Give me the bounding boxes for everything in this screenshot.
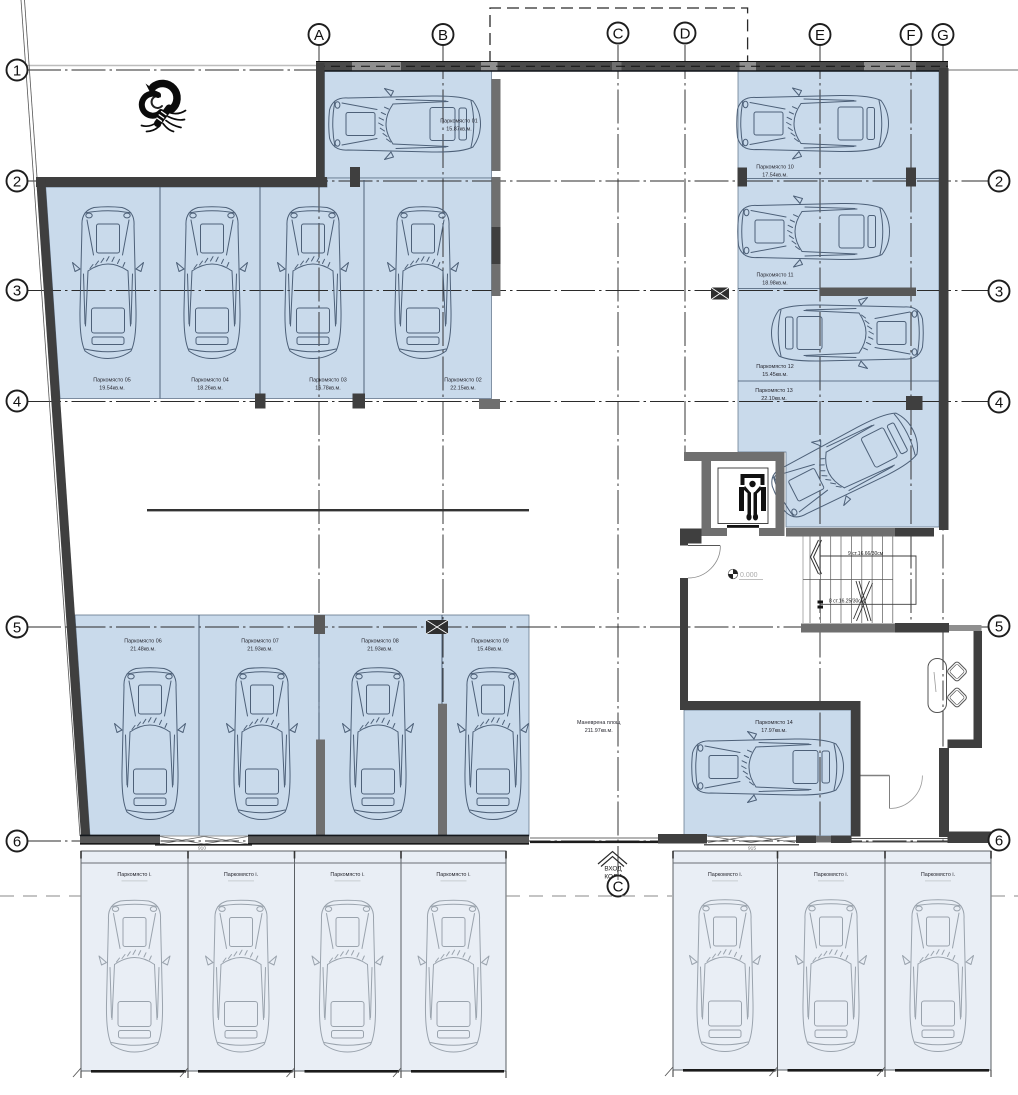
svg-text:G: G: [937, 27, 949, 44]
svg-text:915: 915: [748, 846, 756, 852]
svg-text:3: 3: [13, 282, 21, 299]
svg-text:Паркомясто 10: Паркомясто 10: [756, 165, 794, 171]
svg-text:5: 5: [995, 618, 1003, 635]
svg-text:21.48кв.м.: 21.48кв.м.: [130, 647, 155, 653]
svg-text:Маневрена площ: Маневрена площ: [577, 720, 621, 726]
svg-text:Паркомясто i.: Паркомясто i.: [814, 872, 848, 878]
svg-text:D: D: [680, 25, 691, 42]
svg-text:C: C: [613, 25, 624, 42]
svg-text:16.78кв.м.: 16.78кв.м.: [315, 386, 340, 392]
svg-text:Паркомясто 09: Паркомясто 09: [471, 639, 509, 645]
svg-text:2: 2: [995, 173, 1003, 190]
svg-text:21.93кв.м.: 21.93кв.м.: [247, 647, 272, 653]
svg-text:9 ст.16.66/30см: 9 ст.16.66/30см: [848, 551, 884, 557]
svg-text:1: 1: [13, 62, 21, 79]
svg-text:6: 6: [13, 833, 21, 850]
svg-text:17.54кв.м.: 17.54кв.м.: [762, 173, 787, 179]
svg-text:2: 2: [13, 173, 21, 190]
svg-text:Паркомясто 08: Паркомясто 08: [361, 639, 399, 645]
svg-text:A: A: [314, 27, 324, 44]
svg-text:Паркомясто i.: Паркомясто i.: [436, 872, 470, 878]
svg-text:Паркомясто 01: Паркомясто 01: [440, 119, 478, 125]
svg-text:ВХОД: ВХОД: [604, 866, 622, 873]
svg-text:3: 3: [995, 283, 1003, 300]
svg-text:5: 5: [13, 619, 21, 636]
svg-text:Паркомясто i.: Паркомясто i.: [708, 872, 742, 878]
svg-text:4: 4: [995, 394, 1003, 411]
svg-text:22.15кв.м.: 22.15кв.м.: [450, 386, 475, 392]
svg-text:4: 4: [13, 393, 21, 410]
svg-text:C: C: [613, 878, 624, 895]
svg-text:15.87кв.м.: 15.87кв.м.: [446, 127, 471, 133]
svg-text:17.97кв.м.: 17.97кв.м.: [761, 728, 786, 734]
svg-text:15.45кв.м.: 15.45кв.м.: [762, 372, 787, 378]
svg-text:Паркомясто 06: Паркомясто 06: [124, 639, 162, 645]
svg-text:18.26кв.м.: 18.26кв.м.: [197, 386, 222, 392]
svg-text:Паркомясто 03: Паркомясто 03: [309, 378, 347, 384]
svg-text:Паркомясто 13: Паркомясто 13: [755, 388, 793, 394]
svg-text:Паркомясто i.: Паркомясто i.: [117, 872, 151, 878]
svg-text:Паркомясто 12: Паркомясто 12: [756, 364, 794, 370]
svg-text:B: B: [438, 27, 448, 44]
svg-text:Паркомясто i.: Паркомясто i.: [921, 872, 955, 878]
svg-text:E: E: [815, 27, 825, 44]
svg-text:Паркомясто 05: Паркомясто 05: [93, 378, 131, 384]
svg-text:8 ст.16.25/30см: 8 ст.16.25/30см: [829, 599, 865, 605]
svg-text:910: 910: [198, 846, 206, 852]
svg-text:Паркомясто i.: Паркомясто i.: [224, 872, 258, 878]
svg-text:F: F: [906, 27, 915, 44]
svg-text:Паркомясто 04: Паркомясто 04: [191, 378, 229, 384]
svg-text:21.93кв.м.: 21.93кв.м.: [367, 647, 392, 653]
svg-text:Паркомясто 07: Паркомясто 07: [241, 639, 279, 645]
svg-text:22.10кв.м.: 22.10кв.м.: [761, 396, 786, 402]
svg-text:6: 6: [995, 832, 1003, 849]
svg-text:19.54кв.м.: 19.54кв.м.: [99, 386, 124, 392]
svg-text:Паркомясто 02: Паркомясто 02: [444, 378, 482, 384]
svg-text:15.48кв.м.: 15.48кв.м.: [477, 647, 502, 653]
svg-text:211.97кв.м.: 211.97кв.м.: [585, 728, 613, 734]
svg-text:Паркомясто i.: Паркомясто i.: [330, 872, 364, 878]
svg-text:Паркомясто 14: Паркомясто 14: [755, 720, 793, 726]
svg-text:0.000: 0.000: [740, 572, 758, 579]
svg-text:Паркомясто 11: Паркомясто 11: [756, 273, 793, 279]
svg-text:18.98кв.м.: 18.98кв.м.: [762, 281, 787, 287]
